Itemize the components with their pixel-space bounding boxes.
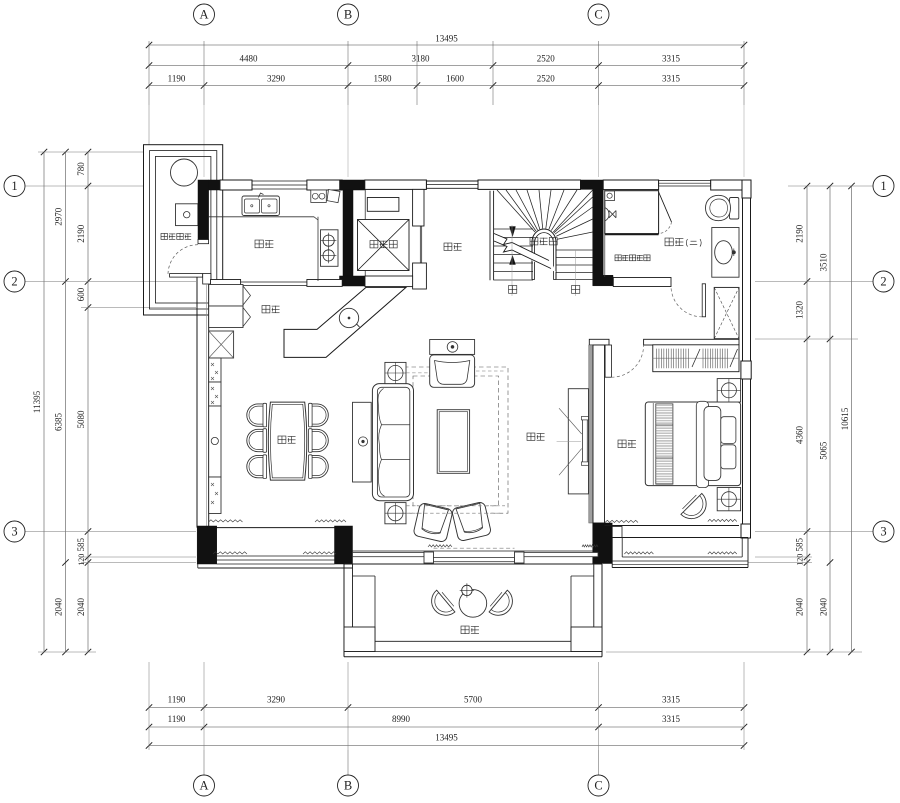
- svg-text:3315: 3315: [662, 695, 681, 705]
- svg-text:5080: 5080: [76, 410, 86, 429]
- svg-text:2040: 2040: [795, 598, 805, 617]
- svg-text:2040: 2040: [54, 598, 64, 617]
- svg-text:600: 600: [76, 287, 86, 301]
- svg-text:6385: 6385: [54, 413, 64, 432]
- svg-text:3315: 3315: [662, 74, 681, 84]
- svg-text:2040: 2040: [819, 598, 829, 617]
- svg-text:4360: 4360: [795, 426, 805, 445]
- svg-text:C: C: [594, 8, 602, 22]
- svg-text:13495: 13495: [435, 733, 458, 743]
- svg-text:3290: 3290: [267, 74, 286, 84]
- svg-text:2: 2: [880, 275, 886, 289]
- svg-text:120: 120: [77, 554, 86, 566]
- svg-text:B: B: [344, 8, 352, 22]
- svg-text:5065: 5065: [819, 441, 829, 460]
- svg-text:3315: 3315: [662, 714, 681, 724]
- svg-text:1600: 1600: [446, 74, 465, 84]
- svg-text:1190: 1190: [168, 695, 186, 705]
- svg-text:A: A: [199, 779, 208, 793]
- svg-text:A: A: [199, 8, 208, 22]
- svg-text:C: C: [594, 779, 602, 793]
- svg-text:3: 3: [880, 525, 886, 539]
- svg-text:2970: 2970: [54, 207, 64, 226]
- svg-text:780: 780: [76, 162, 86, 176]
- svg-text:3290: 3290: [267, 695, 286, 705]
- svg-text:2190: 2190: [76, 224, 86, 243]
- svg-text:3315: 3315: [662, 54, 681, 64]
- svg-text:8990: 8990: [392, 714, 411, 724]
- svg-text:10615: 10615: [840, 407, 850, 430]
- svg-text:11395: 11395: [32, 390, 42, 413]
- svg-text:3510: 3510: [819, 253, 829, 272]
- svg-text:13495: 13495: [435, 34, 458, 44]
- svg-text:3180: 3180: [412, 54, 431, 64]
- svg-text:120: 120: [796, 554, 805, 566]
- svg-text:1: 1: [11, 179, 17, 193]
- svg-text:1320: 1320: [795, 301, 805, 320]
- svg-text:2040: 2040: [76, 598, 86, 617]
- svg-text:1: 1: [880, 179, 886, 193]
- svg-text:3: 3: [11, 525, 17, 539]
- svg-text:B: B: [344, 779, 352, 793]
- svg-text:2: 2: [11, 275, 17, 289]
- svg-text:5700: 5700: [464, 695, 483, 705]
- svg-text:2520: 2520: [537, 74, 556, 84]
- svg-text:585: 585: [795, 537, 805, 551]
- svg-text:585: 585: [76, 537, 86, 551]
- svg-text:1190: 1190: [168, 714, 186, 724]
- svg-text:1580: 1580: [374, 74, 393, 84]
- svg-text:2190: 2190: [795, 224, 805, 243]
- svg-text:1190: 1190: [168, 74, 186, 84]
- svg-text:4480: 4480: [240, 54, 259, 64]
- svg-text:2520: 2520: [537, 54, 556, 64]
